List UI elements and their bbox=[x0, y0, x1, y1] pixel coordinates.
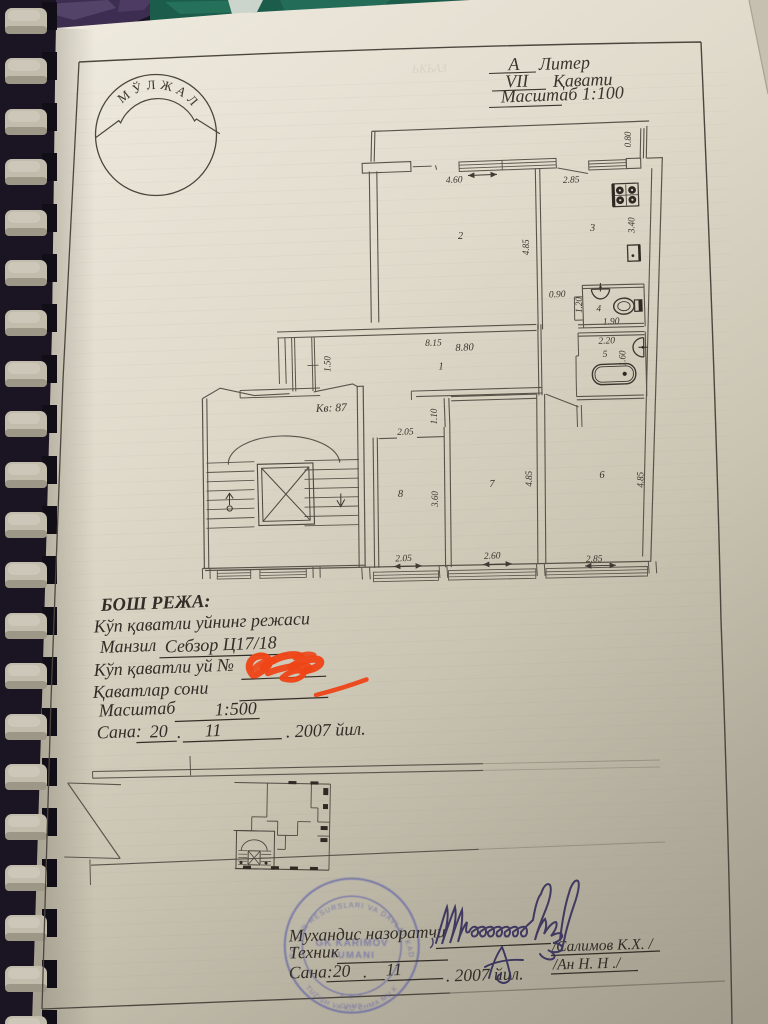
svg-text:3.40: 3.40 bbox=[627, 217, 637, 234]
svg-text:Манзил: Манзил bbox=[98, 635, 156, 657]
svg-text:11: 11 bbox=[204, 720, 221, 741]
svg-text:2.05: 2.05 bbox=[395, 554, 412, 565]
svg-text:ЬКЬАЗ: ЬКЬАЗ bbox=[411, 61, 447, 76]
svg-text:8.80: 8.80 bbox=[455, 342, 475, 354]
svg-text:20: 20 bbox=[333, 961, 351, 981]
svg-text:1.20: 1.20 bbox=[574, 297, 584, 313]
svg-text:4: 4 bbox=[596, 304, 601, 314]
svg-text:.: . bbox=[363, 961, 368, 981]
svg-text:3: 3 bbox=[589, 223, 596, 234]
svg-text:2.60: 2.60 bbox=[484, 551, 501, 562]
svg-text:2.85: 2.85 bbox=[586, 554, 603, 565]
svg-text:2.20: 2.20 bbox=[598, 336, 615, 347]
svg-text:1: 1 bbox=[438, 361, 444, 372]
svg-text:* 4 *: * 4 * bbox=[340, 994, 363, 1001]
svg-text:2.85: 2.85 bbox=[563, 175, 580, 186]
svg-text:20: 20 bbox=[149, 721, 168, 742]
svg-text:1:500: 1:500 bbox=[214, 698, 257, 720]
svg-text:1.90: 1.90 bbox=[603, 317, 620, 328]
svg-text:.: . bbox=[176, 722, 181, 742]
svg-text:4.85: 4.85 bbox=[521, 239, 531, 255]
svg-text:Кв: 87: Кв: 87 bbox=[315, 402, 348, 415]
svg-text:0.90: 0.90 bbox=[549, 290, 566, 301]
svg-text:Сана:: Сана: bbox=[96, 721, 142, 743]
svg-text:4.85: 4.85 bbox=[524, 470, 534, 486]
svg-text:1.10: 1.10 bbox=[429, 408, 439, 424]
svg-text:Техник: Техник bbox=[289, 941, 340, 962]
svg-text:11: 11 bbox=[386, 959, 403, 979]
svg-text:0.80: 0.80 bbox=[623, 131, 633, 147]
svg-text:1.50: 1.50 bbox=[323, 356, 333, 372]
svg-text:3.60: 3.60 bbox=[430, 491, 440, 508]
svg-text:/Ан Н. Н ./: /Ан Н. Н ./ bbox=[552, 955, 623, 974]
svg-text:4.85: 4.85 bbox=[635, 471, 645, 487]
svg-text:OHMS: OHMS bbox=[341, 1004, 363, 1010]
svg-text:2.05: 2.05 bbox=[397, 427, 414, 438]
svg-text:Масштаб: Масштаб bbox=[97, 698, 176, 721]
svg-text:8.15: 8.15 bbox=[425, 338, 442, 349]
svg-text:4.60: 4.60 bbox=[446, 175, 463, 186]
svg-text:Сана:: Сана: bbox=[289, 961, 333, 982]
svg-text:5: 5 bbox=[603, 350, 608, 360]
svg-text:. 2007 йил.: . 2007 йил. bbox=[285, 718, 366, 741]
svg-text:/Салимов К.Х. /: /Салимов К.Х. / bbox=[551, 936, 655, 956]
